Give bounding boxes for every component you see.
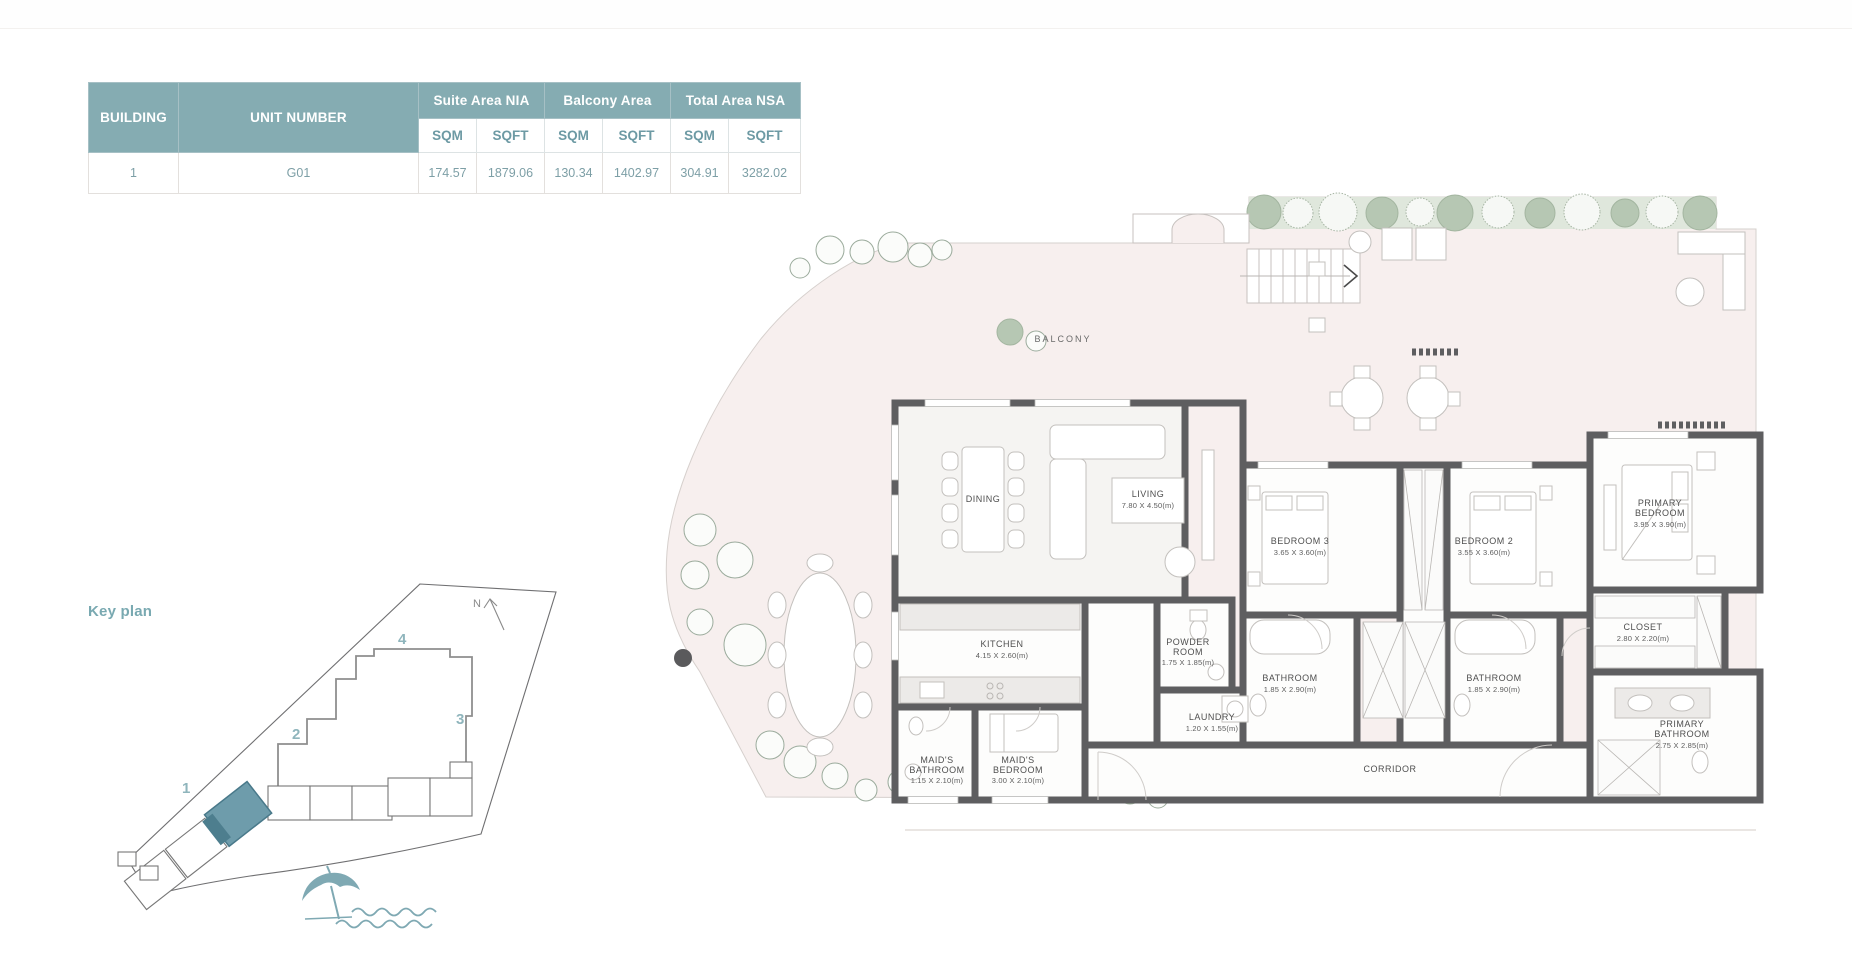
floorplan-drawing: BALCONY DINING LIVING 7.80 X 4.50(m) KIT… <box>630 150 1800 850</box>
cell-suite-sqft: 1879.06 <box>477 153 545 194</box>
maids-bath-dims: 1.15 X 2.10(m) <box>911 776 964 785</box>
north-arrow-icon: N <box>473 598 504 630</box>
building-1-number: 1 <box>182 780 190 797</box>
building-1-annex <box>140 866 158 880</box>
north-label: N <box>473 598 481 610</box>
cell-balcony-sqm: 130.34 <box>545 153 603 194</box>
living-dims: 7.80 X 4.50(m) <box>1122 501 1175 510</box>
cell-building: 1 <box>89 153 179 194</box>
primary-bathroom-label2: BATHROOM <box>1654 729 1709 739</box>
room-maids-bathroom <box>895 707 975 800</box>
sub-header-sqft: SQFT <box>603 119 671 153</box>
bedroom2-label: BEDROOM 2 <box>1455 536 1514 546</box>
balcony-label: BALCONY <box>1034 334 1091 344</box>
cell-unit-number: G01 <box>179 153 419 194</box>
building-2-3-4-outline <box>278 649 472 793</box>
sub-header-sqft: SQFT <box>729 119 801 153</box>
cell-suite-sqm: 174.57 <box>419 153 477 194</box>
laundry-dims: 1.20 X 1.55(m) <box>1186 724 1239 733</box>
building-3-number: 3 <box>456 711 464 728</box>
sub-header-sqm: SQM <box>545 119 603 153</box>
group-header-suite: Suite Area NIA <box>419 83 545 119</box>
kitchen-dims: 4.15 X 2.60(m) <box>976 651 1029 660</box>
maids-bed-label2: BEDROOM <box>993 765 1043 775</box>
building-2-units <box>268 786 392 820</box>
col-unit-header: UNIT NUMBER <box>179 83 419 153</box>
waves-icon <box>352 909 436 916</box>
primary-bedroom-label2: BEDROOM <box>1635 508 1685 518</box>
group-header-total: Total Area NSA <box>671 83 801 119</box>
room-entry <box>1085 600 1157 745</box>
beach-umbrella-icon <box>302 866 436 928</box>
keyplan-drawing: 1 2 3 4 N <box>95 570 575 959</box>
primary-bedroom-label: PRIMARY <box>1638 498 1682 508</box>
living-label: LIVING <box>1132 489 1165 499</box>
closet-dims: 2.80 X 2.20(m) <box>1617 634 1670 643</box>
closet-label: CLOSET <box>1623 622 1662 632</box>
floorplan-sheet: BUILDING UNIT NUMBER Suite Area NIA Balc… <box>0 0 1852 959</box>
page-top-edge <box>0 0 1852 29</box>
building-2-number: 2 <box>292 726 300 743</box>
bedroom3-label: BEDROOM 3 <box>1271 536 1330 546</box>
building-4-number: 4 <box>398 631 407 648</box>
maids-bath-label: MAID'S <box>920 755 953 765</box>
bathroom2-label: BATHROOM <box>1466 673 1521 683</box>
primary-bathroom-label: PRIMARY <box>1660 719 1704 729</box>
bathroom2-dims: 1.85 X 2.90(m) <box>1468 685 1521 694</box>
building-1-units <box>123 782 272 911</box>
dining-label: DINING <box>966 494 1001 504</box>
laundry-label: LAUNDRY <box>1189 712 1235 722</box>
bedroom3-dims: 3.65 X 3.60(m) <box>1274 548 1327 557</box>
powder-label: POWDER <box>1166 637 1210 647</box>
kitchen-label: KITCHEN <box>980 639 1023 649</box>
sub-header-sqm: SQM <box>419 119 477 153</box>
sub-header-sqm: SQM <box>671 119 729 153</box>
maids-bed-label: MAID'S <box>1001 755 1034 765</box>
maids-bed-dims: 3.00 X 2.10(m) <box>992 776 1045 785</box>
primary-bathroom-dims: 2.75 X 2.85(m) <box>1656 741 1709 750</box>
room-corridor <box>1085 745 1590 800</box>
col-building-header: BUILDING <box>89 83 179 153</box>
building-1-annex <box>118 852 136 866</box>
maids-bath-label2: BATHROOM <box>909 765 964 775</box>
bedroom2-dims: 3.55 X 3.60(m) <box>1458 548 1511 557</box>
bathroom3-dims: 1.85 X 2.90(m) <box>1264 685 1317 694</box>
site-marker-dot <box>674 649 692 667</box>
bathroom3-label: BATHROOM <box>1262 673 1317 683</box>
building-3-units <box>388 762 472 816</box>
group-header-balcony: Balcony Area <box>545 83 671 119</box>
primary-bedroom-dims: 3.95 X 3.90(m) <box>1634 520 1687 529</box>
corridor-label: CORRIDOR <box>1364 764 1417 774</box>
waves-icon <box>336 921 432 928</box>
sub-header-sqft: SQFT <box>477 119 545 153</box>
powder-label2: ROOM <box>1173 647 1203 657</box>
powder-dims: 1.75 X 1.85(m) <box>1162 658 1215 667</box>
